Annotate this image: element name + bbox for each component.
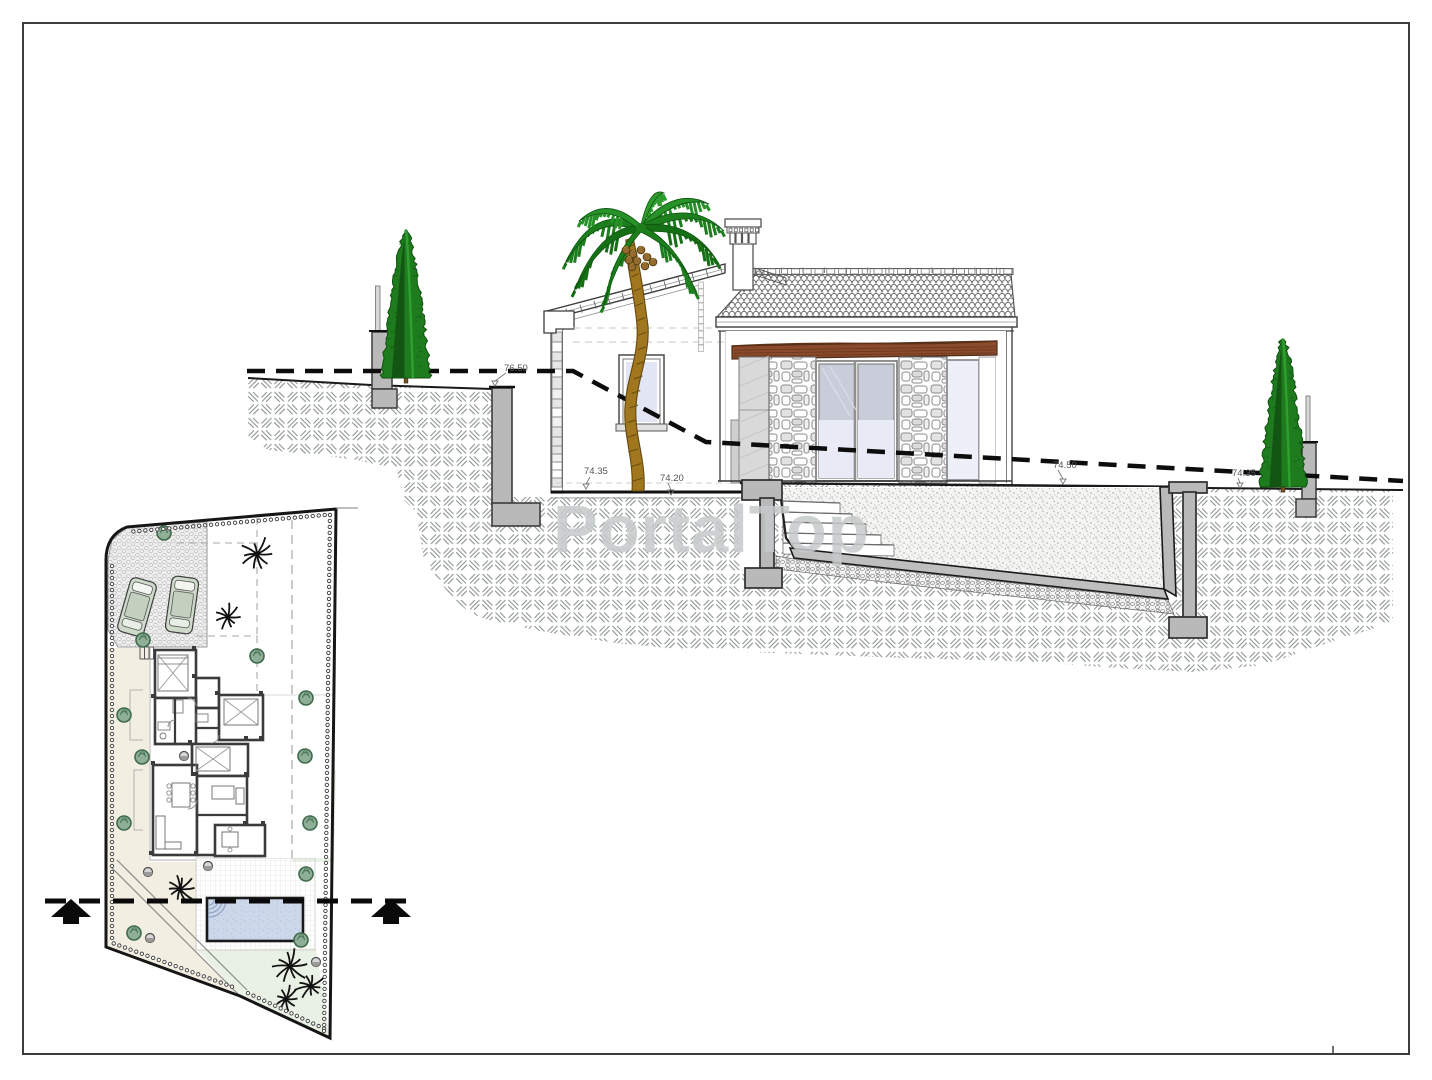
svg-text:PortalTop: PortalTop [553,492,870,567]
svg-text:74.50: 74.50 [1053,460,1077,471]
svg-text:74.35: 74.35 [584,466,608,477]
svg-text:76.50: 76.50 [504,363,528,374]
svg-text:74.35: 74.35 [1232,468,1256,479]
svg-text:74.20: 74.20 [660,473,684,484]
